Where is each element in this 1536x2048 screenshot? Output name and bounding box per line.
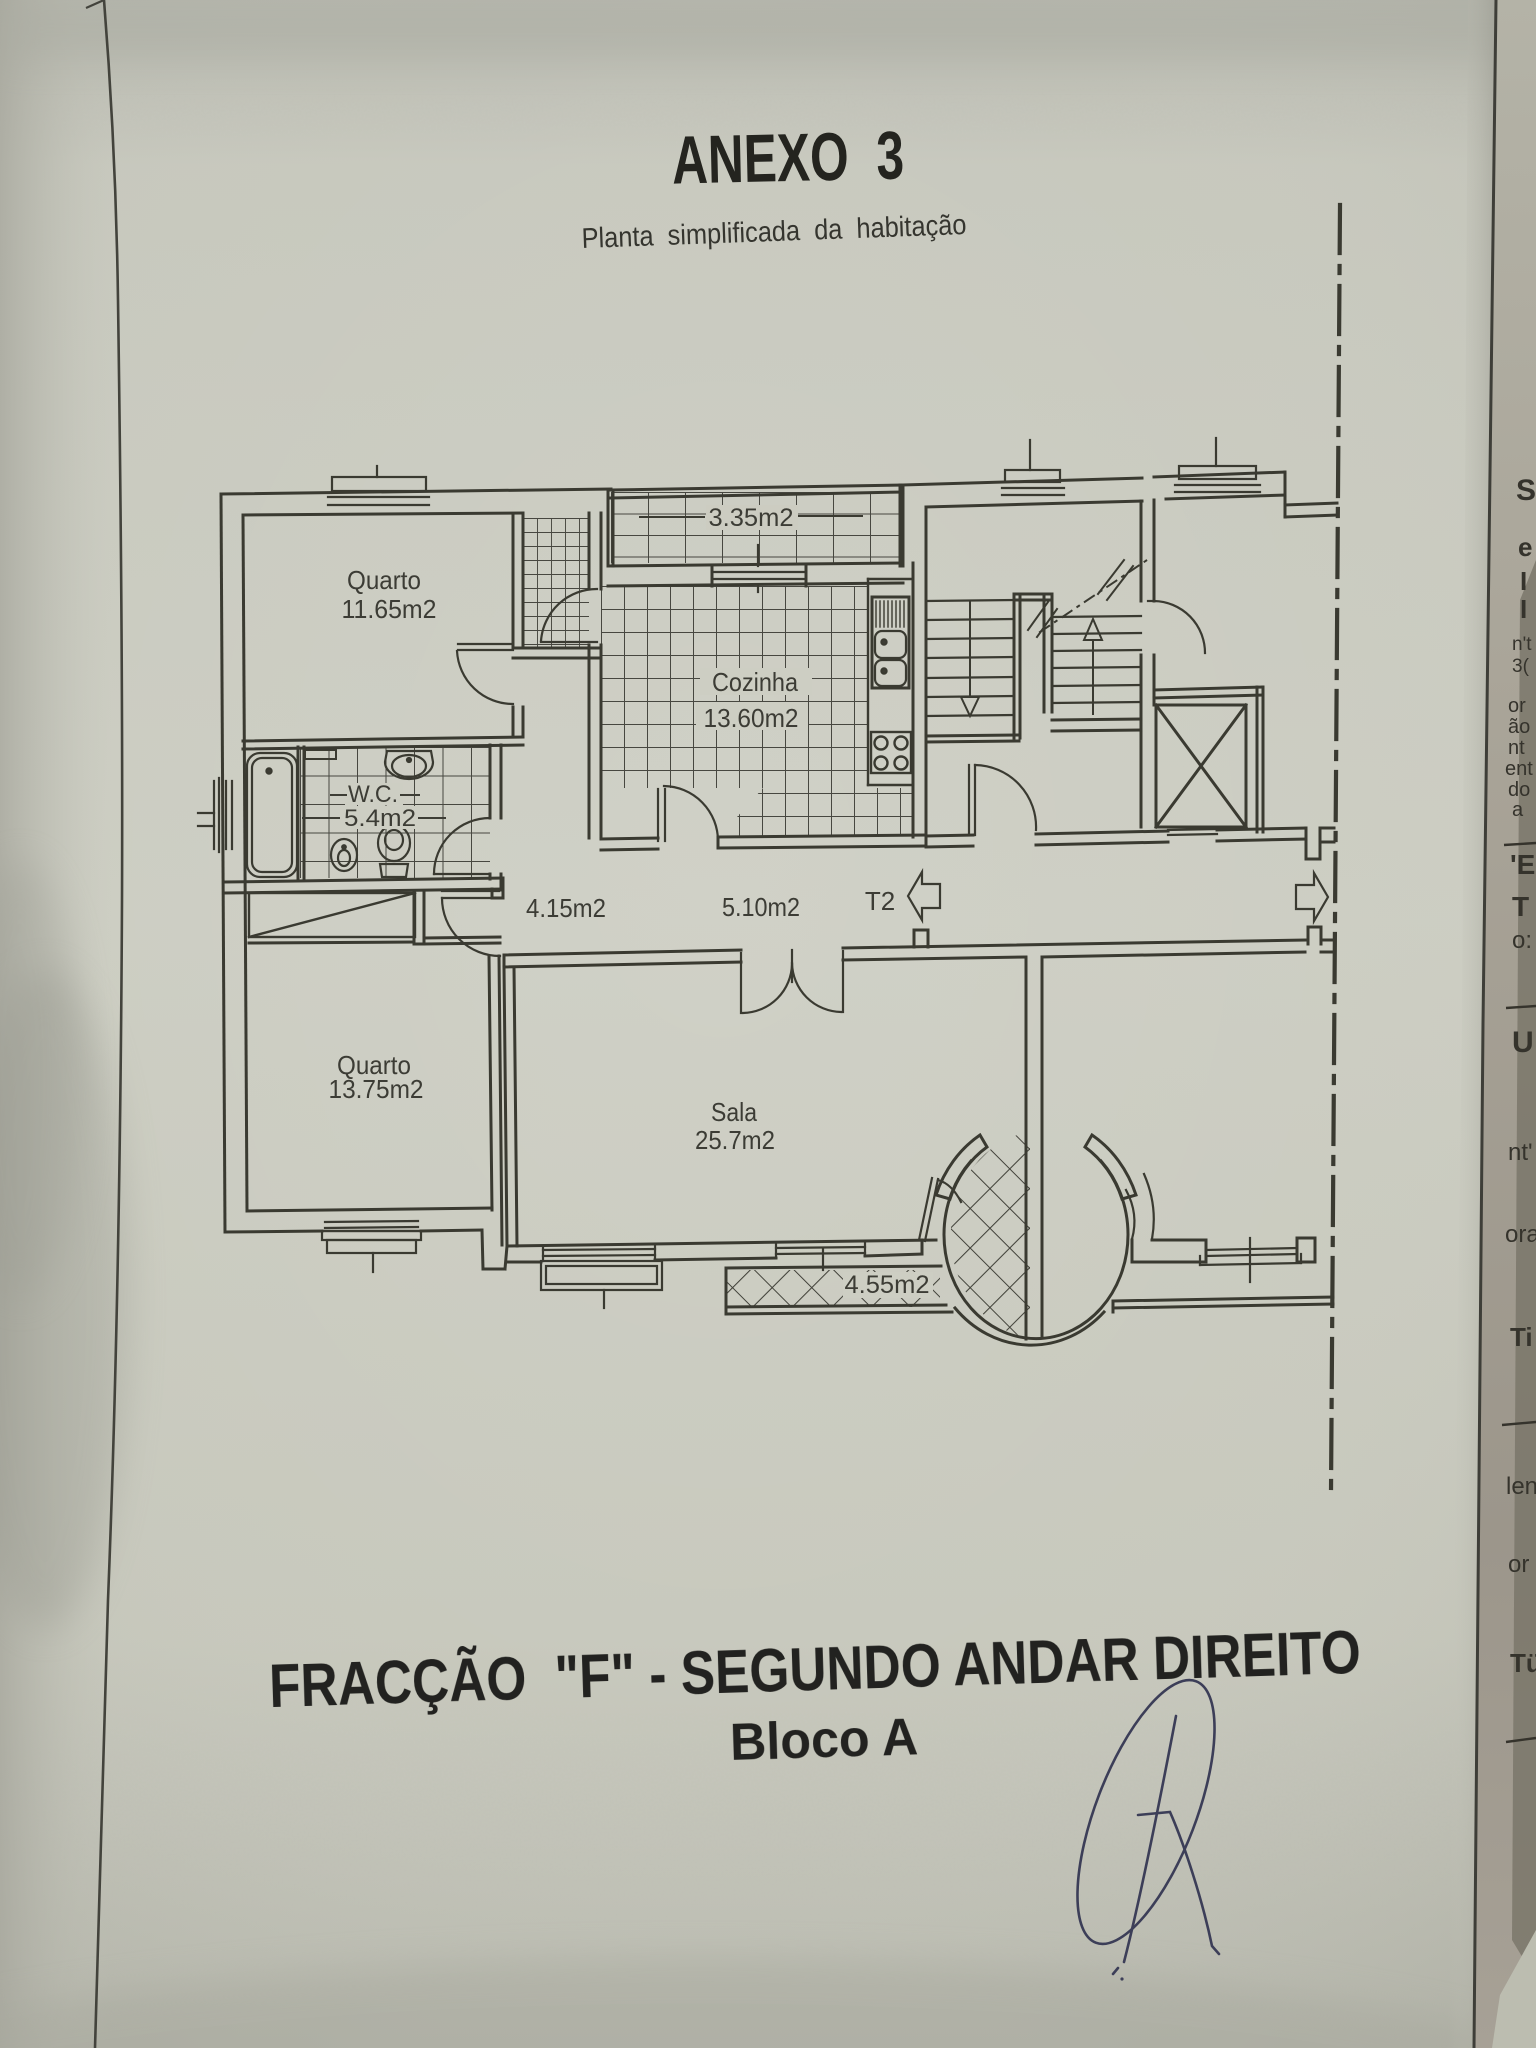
svg-text:a: a (1512, 799, 1524, 821)
svg-text:or: or (1508, 695, 1526, 717)
svg-text:nt: nt (1508, 737, 1525, 759)
svg-text:Bloco A: Bloco A (729, 1708, 919, 1772)
svg-text:I: I (1520, 566, 1527, 596)
svg-text:U: U (1512, 1026, 1534, 1059)
svg-text:e: e (1518, 532, 1532, 562)
svg-text:25.7m2: 25.7m2 (695, 1125, 775, 1155)
svg-text:or: or (1508, 1551, 1529, 1578)
svg-text:do: do (1508, 779, 1530, 801)
svg-text:3.35m2: 3.35m2 (709, 504, 794, 532)
svg-text:3(: 3( (1512, 656, 1530, 677)
svg-text:Sala: Sala (711, 1097, 757, 1127)
svg-text:ent: ent (1505, 758, 1533, 780)
svg-text:nt': nt' (1508, 1139, 1533, 1166)
svg-text:4.55m2: 4.55m2 (845, 1271, 930, 1299)
svg-text:I: I (1520, 594, 1527, 624)
svg-text:'E: 'E (1510, 849, 1535, 880)
svg-text:W.C.: W.C. (348, 781, 398, 808)
svg-text:Ti: Ti (1510, 1322, 1533, 1352)
svg-text:13.60m2: 13.60m2 (704, 703, 799, 733)
svg-text:5.10m2: 5.10m2 (722, 892, 800, 922)
svg-text:11.65m2: 11.65m2 (342, 594, 437, 624)
svg-text:len: len (1506, 1473, 1536, 1500)
svg-text:ora: ora (1505, 1221, 1536, 1248)
svg-text:4.15m2: 4.15m2 (526, 893, 606, 923)
svg-text:o:: o: (1512, 927, 1532, 954)
svg-text:T: T (1512, 891, 1529, 922)
svg-text:S: S (1516, 474, 1536, 507)
svg-text:Quarto: Quarto (347, 565, 421, 595)
svg-text:Cozinha: Cozinha (712, 667, 798, 697)
svg-text:5.4m2: 5.4m2 (344, 805, 416, 832)
svg-text:ANEXO 3: ANEXO 3 (671, 117, 905, 198)
svg-text:T2: T2 (865, 886, 895, 916)
svg-text:ão: ão (1508, 716, 1530, 738)
svg-text:13.75m2: 13.75m2 (329, 1074, 424, 1104)
svg-text:n't: n't (1512, 634, 1532, 655)
svg-text:Tü: Tü (1510, 1648, 1536, 1678)
